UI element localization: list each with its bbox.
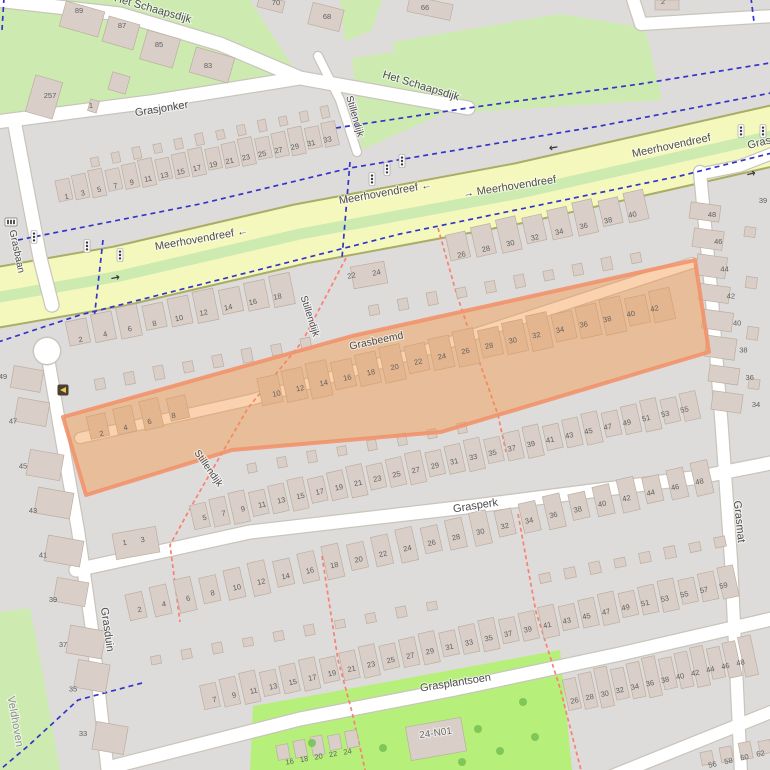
- building: [236, 124, 246, 136]
- building: [306, 450, 317, 463]
- tree-icon: [496, 747, 504, 755]
- building: [241, 348, 253, 363]
- house-number: 1: [89, 101, 93, 110]
- house-number: 45: [19, 461, 27, 470]
- map-svg[interactable]: 1357911131517192123252729313324681012141…: [0, 0, 770, 770]
- traffic-light-icon: [84, 240, 90, 253]
- building: [123, 371, 135, 385]
- building: [182, 361, 194, 373]
- house-number: 40: [733, 319, 741, 328]
- house-number: 16: [285, 756, 295, 766]
- map-canvas[interactable]: 1357911131517192123252729313324681012141…: [0, 0, 770, 770]
- traffic-light-icon: [399, 155, 405, 168]
- building: [153, 365, 165, 380]
- building: [746, 326, 759, 340]
- building: [655, 0, 679, 10]
- traffic-light-icon: [384, 163, 390, 176]
- house-number: 70: [272, 0, 280, 7]
- building: [94, 378, 106, 390]
- house-number: 68: [323, 12, 331, 21]
- building: [90, 157, 100, 168]
- building: [539, 572, 552, 583]
- building: [334, 619, 345, 629]
- building: [365, 612, 377, 623]
- building: [397, 298, 409, 311]
- building: [367, 439, 378, 451]
- building: [242, 637, 253, 647]
- tree-icon: [379, 744, 387, 752]
- house-number: 34: [752, 400, 760, 409]
- house-number: 83: [204, 61, 212, 70]
- building: [10, 366, 43, 393]
- house-number: 85: [155, 40, 163, 49]
- house-number: 33: [79, 729, 87, 738]
- building: [247, 463, 258, 474]
- building: [174, 138, 184, 150]
- building: [513, 274, 525, 288]
- building: [639, 551, 652, 563]
- building: [711, 391, 743, 414]
- building: [455, 287, 467, 299]
- building: [14, 397, 50, 426]
- building: [150, 655, 161, 665]
- building: [277, 456, 288, 468]
- house-number: 41: [39, 551, 47, 560]
- building: [273, 630, 285, 641]
- house-number: 24: [343, 746, 353, 756]
- house-number: 39: [49, 595, 57, 604]
- building: [426, 601, 437, 611]
- house-number: 47: [9, 417, 17, 426]
- building: [588, 561, 601, 575]
- building: [53, 577, 89, 606]
- traffic-light-icon: [369, 173, 375, 186]
- traffic-light-icon: [117, 249, 123, 262]
- building: [714, 536, 727, 548]
- building: [303, 624, 315, 636]
- building: [26, 449, 64, 481]
- building: [601, 257, 613, 271]
- building: [337, 446, 348, 457]
- tree-icon: [308, 739, 316, 747]
- house-number: 22: [328, 749, 338, 759]
- tree-icon: [519, 698, 527, 706]
- house-number: 36: [746, 373, 754, 382]
- building: [92, 721, 128, 754]
- house-number: 44: [720, 264, 728, 273]
- building: [426, 291, 438, 305]
- building: [630, 252, 642, 264]
- house-number: 87: [118, 21, 126, 30]
- building: [614, 557, 627, 568]
- building: [572, 263, 584, 276]
- building: [74, 659, 110, 692]
- house-number: 35: [69, 684, 77, 693]
- building: [745, 276, 757, 289]
- house-number: 48: [708, 210, 716, 219]
- building: [111, 152, 121, 164]
- building: [153, 143, 163, 154]
- building: [689, 542, 702, 553]
- building: [543, 270, 555, 282]
- building: [299, 111, 309, 123]
- building: [663, 545, 676, 559]
- house-number: 2: [661, 0, 665, 6]
- house-number: 43: [29, 506, 37, 515]
- house-number: 257: [44, 91, 57, 100]
- tree-icon: [531, 733, 539, 741]
- house-number: 39: [759, 196, 767, 205]
- building: [368, 304, 380, 316]
- house-number: 18: [299, 754, 309, 764]
- building: [181, 648, 193, 659]
- building: [395, 606, 407, 618]
- building: [327, 734, 342, 751]
- house-number: 49: [0, 372, 7, 381]
- building: [212, 354, 224, 368]
- house-number: 46: [714, 237, 722, 246]
- building: [216, 129, 226, 140]
- tree-icon: [458, 758, 466, 766]
- house-number: 66: [421, 3, 429, 12]
- building: [564, 567, 577, 579]
- building: [211, 642, 223, 654]
- building: [484, 280, 496, 293]
- house-number: 20: [314, 751, 324, 761]
- building: [278, 116, 288, 127]
- house-number: 38: [739, 346, 747, 355]
- house-number: 42: [727, 291, 735, 300]
- k-marker-icon: [58, 385, 69, 396]
- tram-stop-icon: [5, 218, 17, 226]
- traffic-light-icon: [738, 125, 744, 138]
- turning-circle: [34, 338, 60, 364]
- tree-icon: [474, 725, 482, 733]
- building: [744, 226, 756, 237]
- traffic-light-icon: [31, 231, 37, 244]
- house-number: 37: [59, 640, 67, 649]
- building: [66, 625, 106, 659]
- house-number: 89: [75, 6, 83, 15]
